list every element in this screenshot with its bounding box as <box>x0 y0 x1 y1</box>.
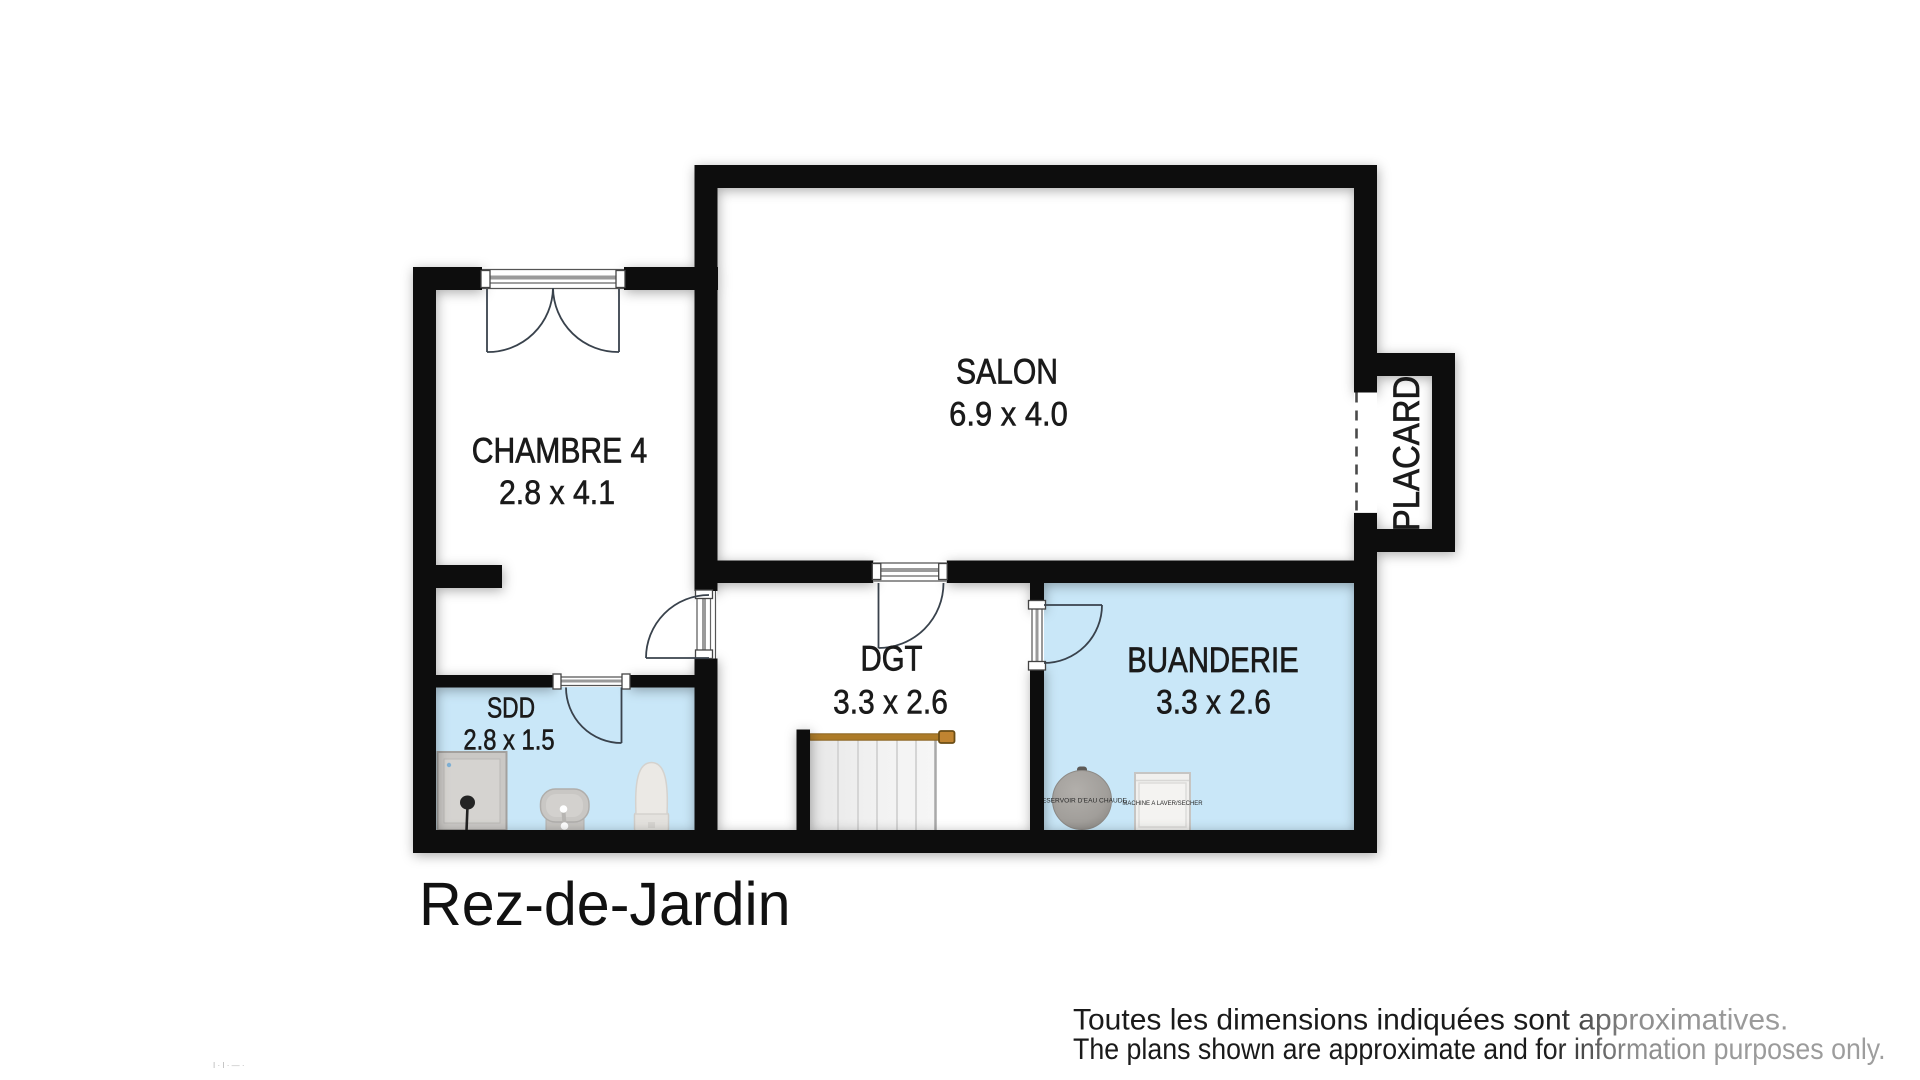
svg-text:RESERVOIR D'EAU CHAUDE: RESERVOIR D'EAU CHAUDE <box>1037 798 1127 805</box>
svg-text:BUANDERIE: BUANDERIE <box>1127 641 1298 680</box>
svg-text:6.9 x 4.0: 6.9 x 4.0 <box>949 395 1068 433</box>
svg-text:2.8 x 4.1: 2.8 x 4.1 <box>499 473 615 511</box>
svg-text:SDD: SDD <box>487 693 535 724</box>
svg-text:3.3 x 2.6: 3.3 x 2.6 <box>1156 683 1271 721</box>
svg-text:SALON: SALON <box>956 352 1058 392</box>
svg-text:I · I · — ·: I · I · — · <box>213 1061 245 1070</box>
svg-text:Rez-de-Jardin: Rez-de-Jardin <box>419 870 791 938</box>
svg-text:MACHINE A LAVER/SECHER: MACHINE A LAVER/SECHER <box>1122 801 1203 807</box>
svg-text:2.8 x 1.5: 2.8 x 1.5 <box>463 723 554 756</box>
svg-text:3.3 x 2.6: 3.3 x 2.6 <box>833 683 948 721</box>
svg-text:PLACARD: PLACARD <box>1386 376 1427 532</box>
svg-text:CHAMBRE 4: CHAMBRE 4 <box>472 431 648 471</box>
svg-text:DGT: DGT <box>860 639 922 678</box>
